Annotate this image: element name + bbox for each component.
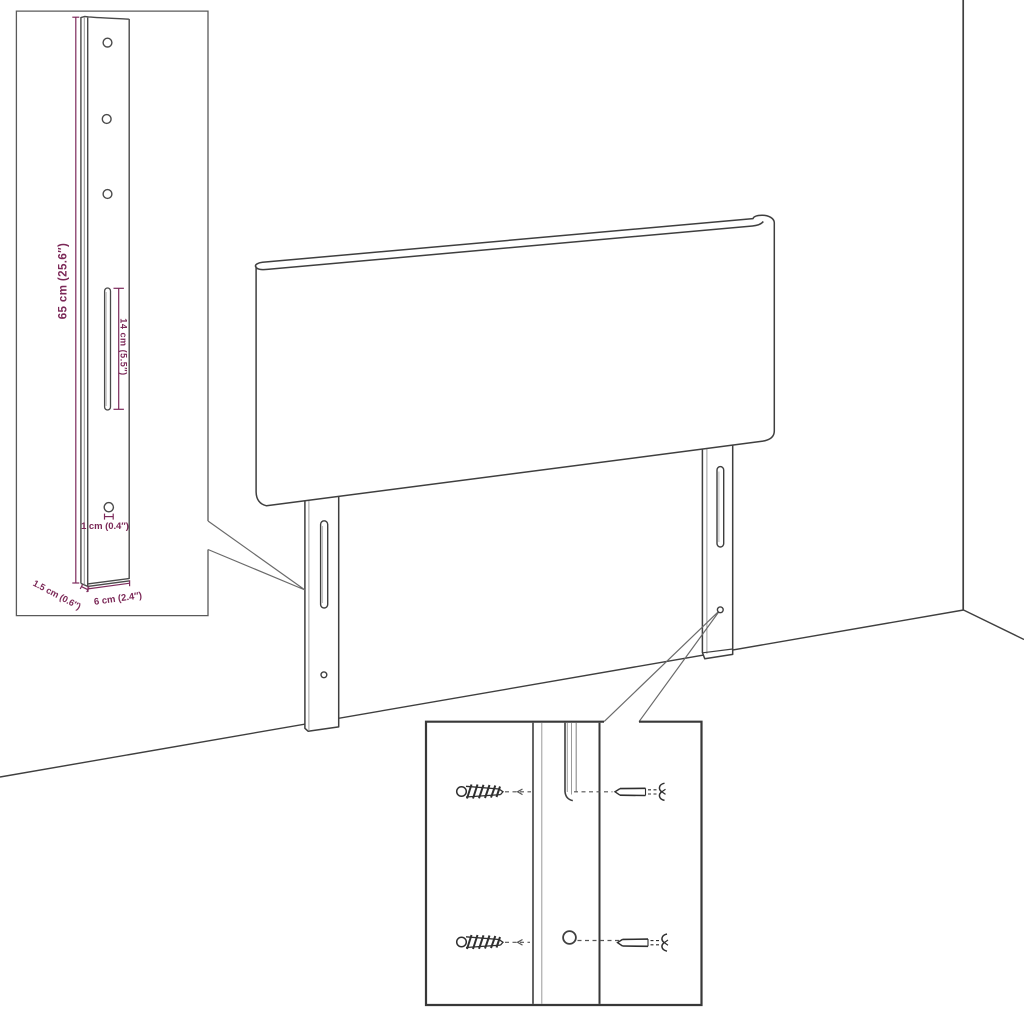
svg-text:1 cm (0.4″): 1 cm (0.4″) <box>81 521 129 532</box>
svg-text:14 cm (5.5″): 14 cm (5.5″) <box>118 318 128 375</box>
svg-text:65 cm (25.6″): 65 cm (25.6″) <box>58 243 70 320</box>
